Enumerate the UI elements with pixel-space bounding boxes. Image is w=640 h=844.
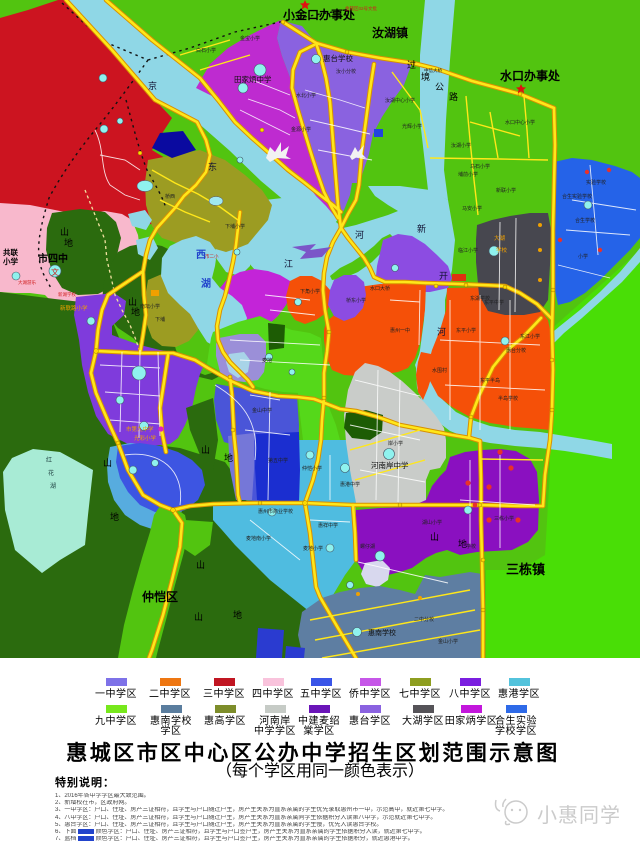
svg-text:南坛小学: 南坛小学 — [140, 303, 160, 310]
svg-text:地: 地 — [110, 511, 119, 522]
svg-text:市二小: 市二小 — [205, 253, 219, 260]
svg-text:地: 地 — [233, 609, 242, 620]
svg-text:市四中: 市四中 — [38, 252, 68, 265]
svg-text:学校: 学校 — [466, 543, 476, 550]
svg-text:开: 开 — [439, 271, 448, 281]
svg-text:麦地南小学: 麦地南小学 — [246, 535, 271, 542]
svg-text:山: 山 — [196, 560, 205, 570]
svg-text:公: 公 — [435, 82, 444, 92]
svg-text:水围村: 水围村 — [432, 367, 447, 374]
svg-text:金宝小学: 金宝小学 — [240, 35, 260, 42]
svg-text:中信大桥: 中信大桥 — [424, 67, 442, 74]
svg-text:水口办事处: 水口办事处 — [500, 68, 561, 83]
svg-text:汝小分校: 汝小分校 — [336, 68, 356, 75]
svg-text:乌石小学: 乌石小学 — [470, 163, 490, 170]
svg-text:汝湖中心小学: 汝湖中心小学 — [385, 97, 415, 104]
svg-text:光辉小学: 光辉小学 — [402, 123, 422, 130]
svg-text:湖山小学: 湖山小学 — [422, 519, 442, 526]
svg-text:白石小学: 白石小学 — [196, 47, 216, 54]
svg-text:合生学校: 合生学校 — [575, 217, 595, 224]
svg-text:实验学校: 实验学校 — [586, 179, 606, 186]
svg-text:惠港中学: 惠港中学 — [340, 481, 360, 488]
svg-text:地: 地 — [64, 237, 73, 248]
svg-text:仍图中学: 仍图中学 — [386, 32, 406, 39]
svg-text:湖: 湖 — [50, 482, 56, 490]
svg-text:惠南学校: 惠南学校 — [368, 628, 396, 637]
svg-text:地: 地 — [131, 306, 140, 317]
svg-text:河: 河 — [355, 229, 364, 240]
svg-text:东: 东 — [208, 161, 217, 172]
svg-text:临江小学: 临江小学 — [458, 247, 478, 254]
svg-text:马安小学: 马安小学 — [462, 205, 482, 212]
svg-text:螺仔湖: 螺仔湖 — [360, 543, 375, 550]
svg-text:惠台分校: 惠台分校 — [506, 347, 526, 354]
svg-text:水北小学: 水北小学 — [296, 92, 316, 99]
svg-text:惠台学校: 惠台学校 — [323, 53, 353, 63]
svg-text:过: 过 — [407, 59, 416, 70]
svg-text:江: 江 — [284, 259, 293, 269]
svg-text:地: 地 — [224, 452, 233, 463]
svg-text:金山小学: 金山小学 — [438, 638, 458, 645]
svg-text:仲恺小学: 仲恺小学 — [302, 465, 322, 472]
svg-text:下埔小学: 下埔小学 — [225, 223, 245, 230]
svg-text:新联路小学: 新联路小学 — [60, 304, 88, 312]
svg-text:大湖: 大湖 — [494, 234, 506, 242]
svg-text:山: 山 — [128, 297, 137, 307]
svg-text:大湖游乐: 大湖游乐 — [18, 279, 36, 286]
svg-text:仲恺区: 仲恺区 — [142, 589, 178, 604]
svg-text:第五中学: 第五中学 — [268, 457, 288, 464]
svg-text:二中分校: 二中分校 — [414, 616, 434, 623]
svg-text:新: 新 — [417, 223, 426, 234]
svg-text:光彩小学: 光彩小学 — [134, 434, 157, 442]
svg-text:路: 路 — [449, 91, 458, 102]
svg-text:花: 花 — [48, 469, 54, 477]
svg-text:合生实验学校: 合生实验学校 — [562, 193, 592, 200]
svg-text:麦地小学: 麦地小学 — [303, 545, 323, 552]
svg-text:红: 红 — [46, 456, 52, 464]
svg-text:半岛学校: 半岛学校 — [498, 395, 518, 402]
svg-text:桥东小学: 桥东小学 — [346, 297, 366, 304]
svg-text:麦地: 麦地 — [262, 357, 272, 364]
svg-text:金山中学: 金山中学 — [252, 407, 272, 414]
svg-text:水口中心小学: 水口中心小学 — [505, 119, 535, 126]
svg-text:学校: 学校 — [496, 246, 508, 254]
svg-text:三栋小学: 三栋小学 — [494, 515, 514, 522]
svg-text:市第九中学: 市第九中学 — [126, 425, 154, 433]
svg-text:共联: 共联 — [3, 247, 18, 257]
svg-text:下角小学: 下角小学 — [300, 288, 320, 295]
svg-text:东湖学校: 东湖学校 — [470, 295, 490, 302]
svg-text:新联小学: 新联小学 — [496, 187, 516, 194]
svg-text:河: 河 — [437, 326, 446, 337]
svg-text:京: 京 — [148, 80, 157, 91]
svg-text:东江小学: 东江小学 — [520, 333, 540, 340]
svg-text:水口大桥: 水口大桥 — [370, 285, 390, 292]
svg-text:文: 文 — [51, 267, 59, 277]
svg-text:惠祥中学: 惠祥中学 — [318, 522, 338, 529]
svg-text:山: 山 — [430, 532, 439, 542]
svg-text:惠州市商业学校: 惠州市商业学校 — [258, 508, 293, 515]
svg-text:山: 山 — [201, 445, 210, 455]
svg-text:河南岸中学: 河南岸中学 — [371, 460, 409, 470]
svg-text:岸小学: 岸小学 — [388, 440, 403, 447]
svg-text:汝湖小学: 汝湖小学 — [451, 142, 471, 149]
svg-text:东平小学: 东平小学 — [456, 327, 476, 334]
svg-text:三栋镇: 三栋镇 — [506, 562, 545, 577]
svg-text:下埔: 下埔 — [155, 316, 165, 323]
svg-text:惠州一中: 惠州一中 — [390, 327, 410, 334]
svg-text:桥西: 桥西 — [165, 193, 175, 200]
svg-text:埔前小学: 埔前小学 — [458, 171, 478, 178]
svg-text:湖: 湖 — [201, 277, 211, 290]
svg-text:金辖区02号文批: 金辖区02号文批 — [345, 5, 378, 12]
svg-text:小学: 小学 — [578, 253, 588, 260]
svg-text:山: 山 — [194, 612, 203, 622]
svg-text:新湖学校: 新湖学校 — [58, 291, 76, 298]
svg-text:金源小学: 金源小学 — [291, 126, 311, 133]
svg-text:小学: 小学 — [3, 256, 18, 266]
svg-text:山: 山 — [60, 227, 69, 237]
svg-text:山: 山 — [103, 458, 112, 468]
svg-text:东平半岛: 东平半岛 — [480, 377, 500, 384]
svg-text:田家炳中学: 田家炳中学 — [234, 74, 272, 84]
